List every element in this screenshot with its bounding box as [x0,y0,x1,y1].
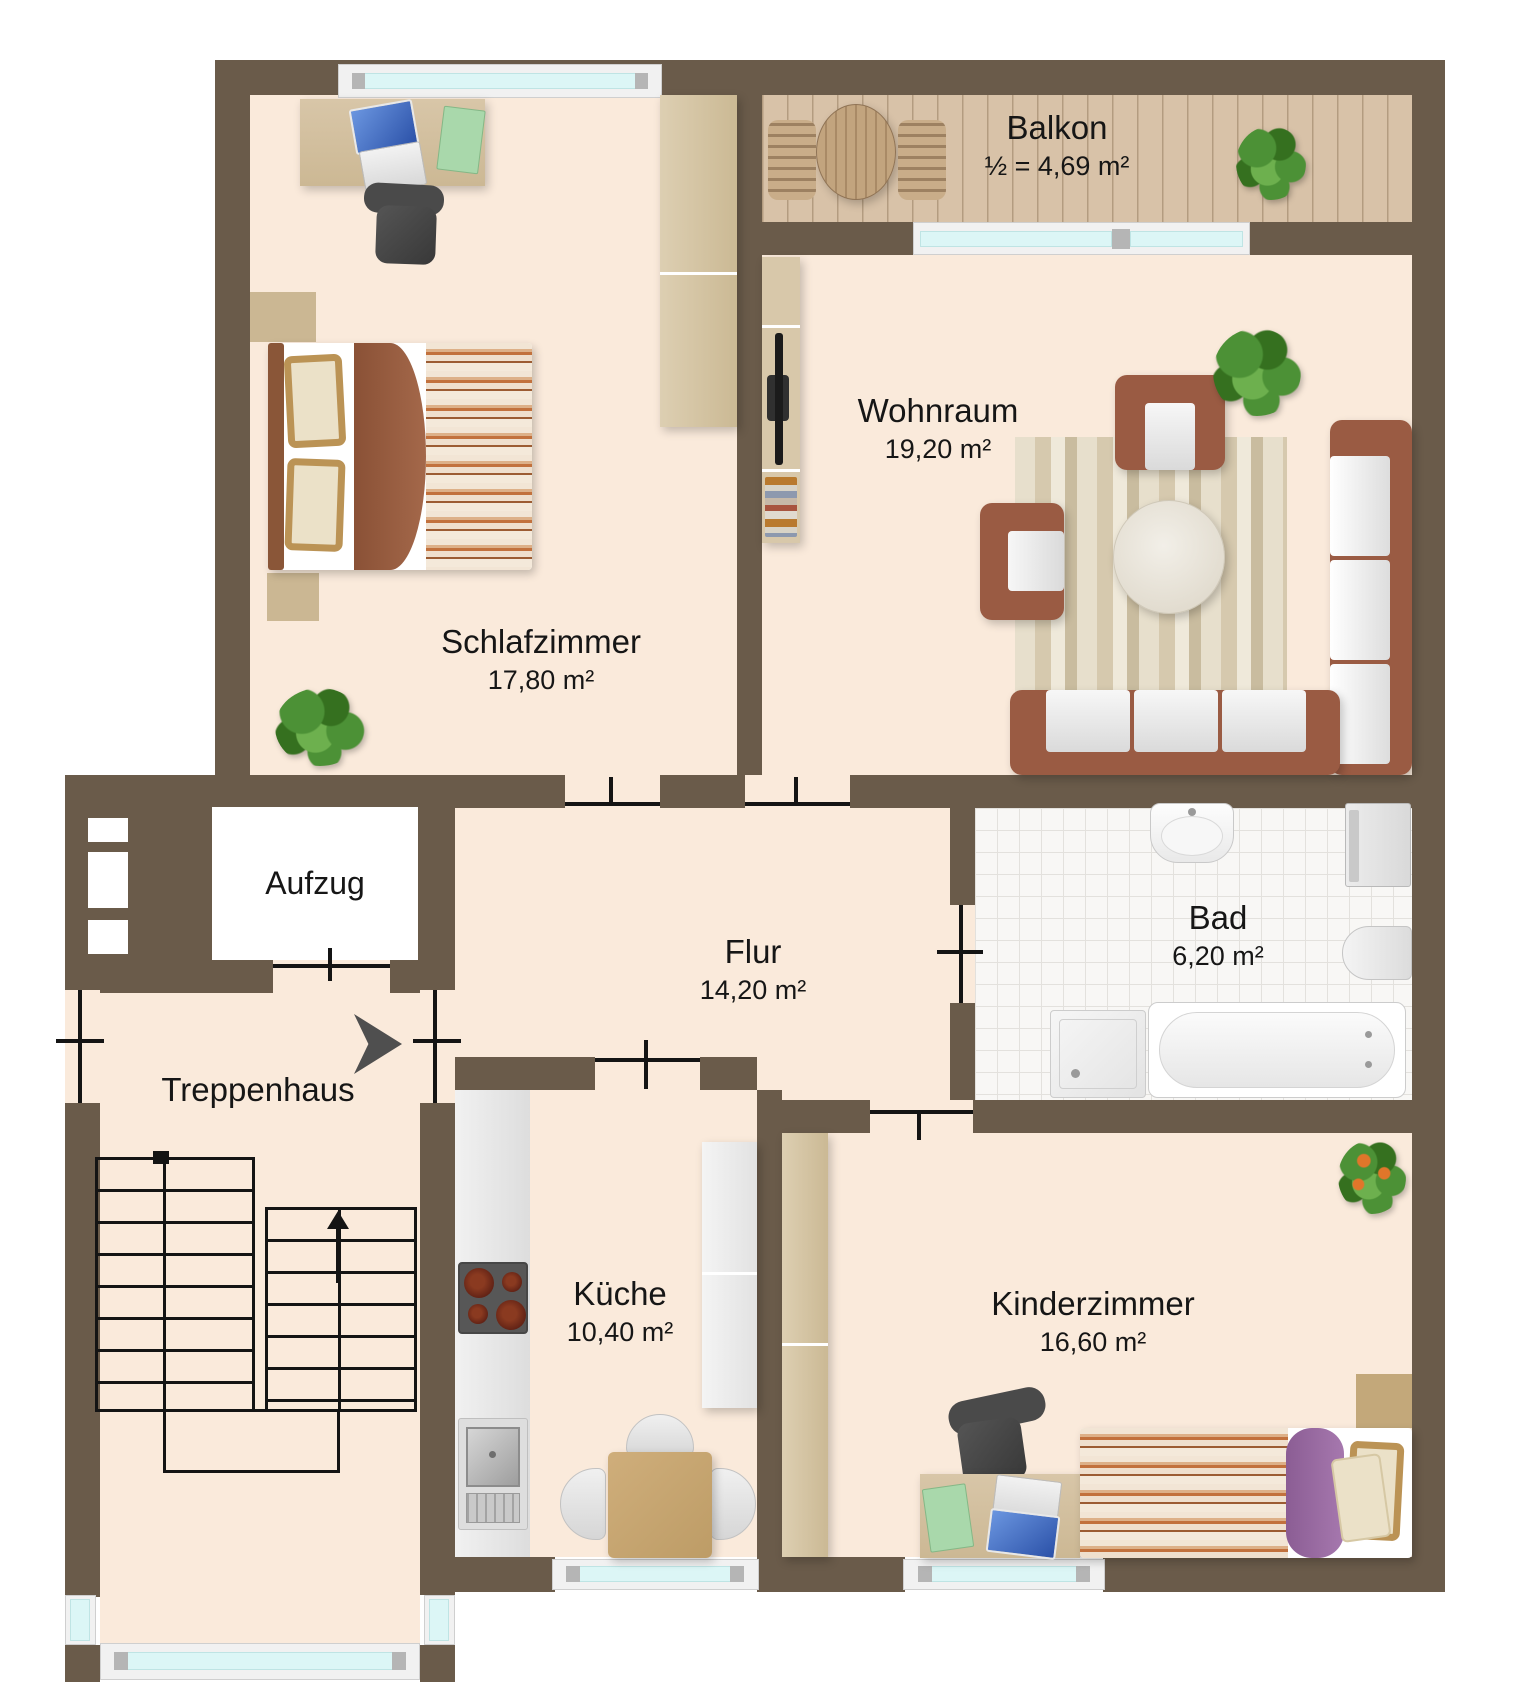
blanket-icon [354,343,426,570]
books-icon [765,477,797,537]
wardrobe-divider [782,1343,828,1346]
room-area: 17,80 m² [391,665,691,695]
sideboard-divider [762,469,800,472]
faucet [1188,808,1196,816]
wall-kinderzimmer-top-b [973,1100,1412,1133]
office-chair-icon [375,205,437,265]
folder-icon [922,1483,974,1553]
potted-plant-icon [275,688,365,766]
faucet [1365,1061,1372,1068]
laptop-icon [986,1508,1061,1560]
window-marker [78,990,82,1103]
window-glass [352,73,648,89]
room-label-aufzug: Aufzug [265,865,365,902]
armchair-icon [1115,375,1225,470]
wall-middle-b [660,775,745,808]
door-marker-tick [328,948,332,981]
armchair-cushion [1008,531,1064,591]
wall-flur-kueche-b [700,1057,757,1090]
room-name: Bad [1068,900,1368,937]
door-marker-tick [794,777,798,806]
wall-balkon-right [1250,222,1412,255]
potted-plant-icon [1213,328,1301,416]
door-marker-tick [644,1040,648,1089]
kitchen-cabinet-icon [702,1142,757,1408]
wardrobe-divider [660,272,737,275]
sofa-cushion [1134,690,1218,752]
room-area: 6,20 m² [1068,941,1368,971]
door-marker [959,905,963,1003]
door-marker [433,990,437,1103]
shower-tray [1059,1019,1137,1089]
wall-flur-bad-lower [950,1003,975,1100]
door-marker [870,1110,973,1114]
balcony-door-glass [1130,231,1243,247]
room-area: ½ = 4,69 m² [907,151,1207,181]
armchair-icon [980,503,1064,620]
room-label-flur: Flur 14,20 m² [603,934,903,1005]
sofa-icon [1010,690,1340,775]
cabinet-divider [702,1272,757,1275]
bathtub-icon [1148,1002,1406,1098]
balcony-chair-icon [768,120,816,200]
bathtub-basin [1159,1012,1395,1088]
door-marker-tick [937,950,983,954]
drainboard [466,1493,520,1523]
double-bed-icon [268,343,532,570]
wall-slot [88,818,128,842]
room-area: 16,60 m² [943,1327,1243,1357]
flowering-plant-icon [1338,1140,1406,1214]
single-bed-icon [1080,1428,1412,1558]
stairs-divider [163,1160,166,1409]
window-cap [1076,1566,1090,1582]
wall-flur-bad-upper [950,808,975,905]
nightstand-icon [1356,1374,1412,1428]
sink-icon [1150,803,1234,863]
window-glass [429,1599,449,1641]
stairs-landing [163,1409,340,1473]
folder-icon [436,106,485,175]
bed-headboard [268,343,284,570]
wall-slot [88,852,128,908]
window-glass [114,1652,406,1670]
door-marker-tick [609,777,613,806]
door-opening-entry [420,990,455,1103]
room-area: 10,40 m² [470,1317,770,1347]
room-name: Kinderzimmer [943,1286,1243,1323]
door-opening-kinderzimmer [870,1100,973,1133]
window-opening-treppenhaus [65,990,100,1103]
room-name: Wohnraum [788,393,1088,430]
wall-outer-bottom-b [757,1557,905,1592]
floor-plan: Aufzug [0,0,1532,1687]
room-label-wohnraum: Wohnraum 19,20 m² [788,393,1088,464]
wardrobe-icon [782,1133,828,1557]
wall-balkon-left [762,222,913,255]
window-cap [566,1566,580,1582]
washer-door [1349,810,1359,882]
bed-cover [426,343,532,570]
window-cap [635,73,648,89]
room-area: 19,20 m² [788,434,1088,464]
room-label-kinderzimmer: Kinderzimmer 16,60 m² [943,1286,1243,1357]
drain [1071,1069,1080,1078]
sofa-cushion [1330,456,1390,556]
room-label-treppenhaus: Treppenhaus [108,1072,408,1109]
room-name: Schlafzimmer [391,624,691,661]
window-cap [918,1566,932,1582]
pillow-icon [284,458,345,552]
shower-icon [1050,1010,1146,1098]
wardrobe-icon [660,95,737,427]
wall-stair-corner-left [65,1645,100,1682]
door-marker-tick [413,1039,461,1043]
balcony-door-glass [920,231,1112,247]
washing-machine-icon [1345,803,1411,887]
window-marker-tick [56,1039,104,1043]
wall-slot [88,920,128,954]
window-glass [70,1599,90,1641]
bed-cover [1080,1428,1288,1558]
nightstand-icon [267,573,319,621]
nightstand-icon [250,292,316,342]
wall-schlafzimmer-wohnraum [737,60,762,775]
wall-stair-corner-right [420,1645,455,1682]
sink-bowl [1161,816,1223,856]
faucet [1365,1031,1372,1038]
coffee-table-icon [1113,500,1225,614]
stairs-icon [95,1157,255,1412]
wall-outer-bottom-c [1103,1557,1412,1592]
sofa-cushion [1330,560,1390,660]
room-name: Treppenhaus [108,1072,408,1109]
potted-plant-icon [1236,126,1306,200]
sofa-cushion [1046,690,1130,752]
room-area: 14,20 m² [603,975,903,1005]
window-glass [918,1566,1090,1582]
dining-table-icon [608,1452,712,1558]
drain [489,1451,496,1458]
room-name: Flur [603,934,903,971]
stairs-newel [153,1151,169,1164]
window-glass [566,1566,744,1582]
wall-outer-left-upper [215,60,250,775]
window-cap [114,1652,128,1670]
window-cap [730,1566,744,1582]
balcony-door-divider [1112,229,1130,249]
armchair-cushion [1145,403,1195,470]
wall-outer-bottom-a [420,1557,555,1592]
room-label-kueche: Küche 10,40 m² [470,1276,770,1347]
door-marker-tick [917,1110,921,1140]
elevator-box: Aufzug [212,807,418,960]
stairs-icon [265,1207,417,1412]
wall-outer-right [1412,60,1445,1592]
sofa-icon [1330,420,1412,775]
kitchen-sink-icon [458,1418,528,1530]
sideboard-divider [762,325,800,328]
sofa-cushion [1222,690,1306,752]
room-name: Küche [470,1276,770,1313]
window-cap [352,73,365,89]
window-cap [392,1652,406,1670]
tv-icon [775,333,783,465]
room-name: Balkon [907,110,1207,147]
room-label-balkon: Balkon ½ = 4,69 m² [907,110,1207,181]
pillow-icon [284,354,347,449]
room-label-schlafzimmer: Schlafzimmer 17,80 m² [391,624,691,695]
balcony-table-icon [816,104,896,200]
stairs-up-arrow-stem [336,1227,340,1283]
room-label-bad: Bad 6,20 m² [1068,900,1368,971]
